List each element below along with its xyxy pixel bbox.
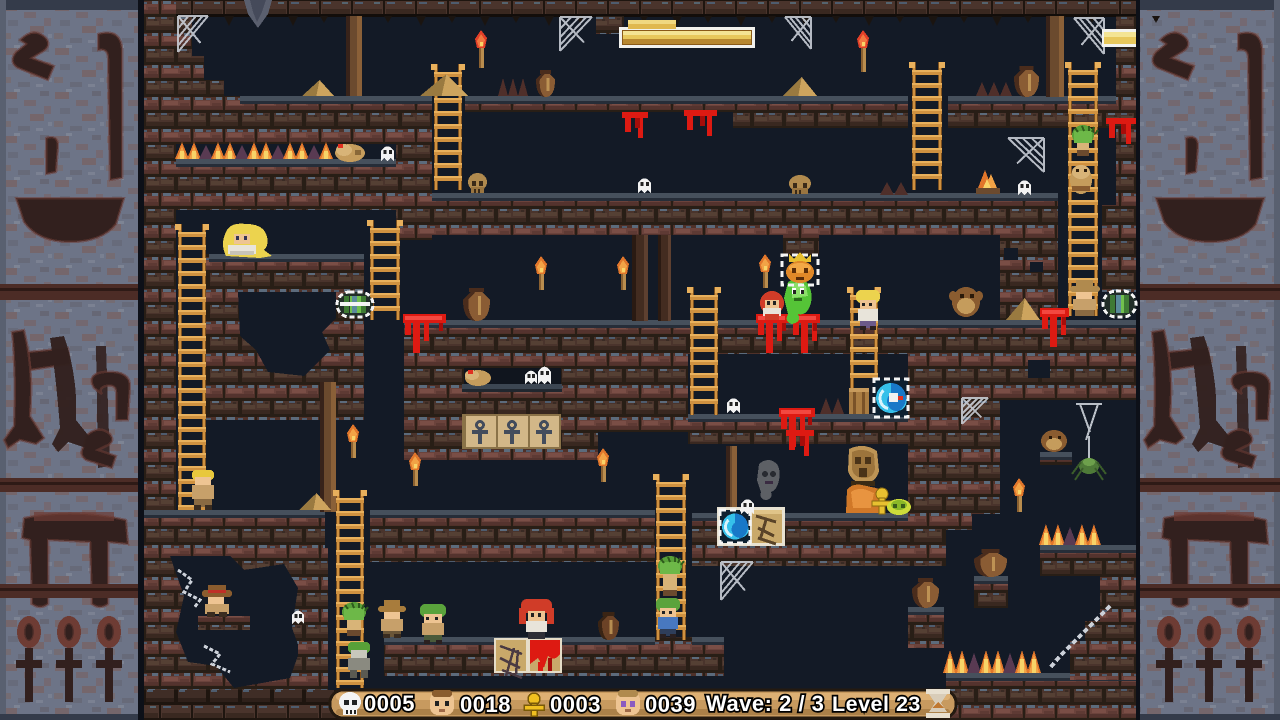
svg-text:Level 23: Level 23 [832,692,921,716]
svg-text:0003: 0003 [550,692,601,717]
svg-text:0005: 0005 [364,691,415,716]
svg-text:Wave: 2 / 3: Wave: 2 / 3 [706,691,824,716]
svg-text:0018: 0018 [460,692,511,717]
svg-text:0039: 0039 [645,692,696,717]
